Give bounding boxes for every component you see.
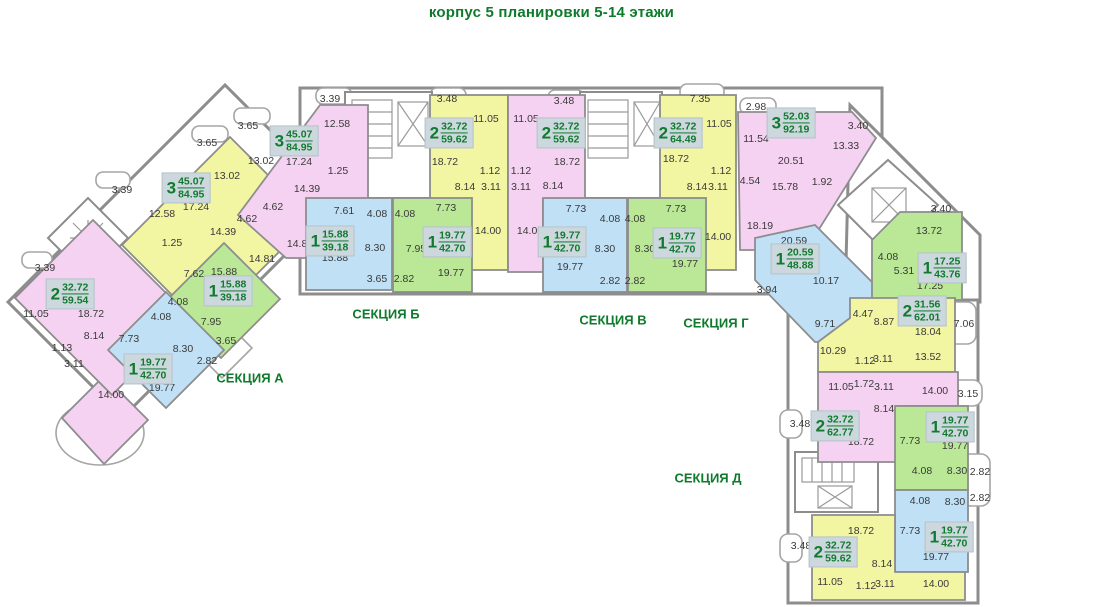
apartment-room-count: 3 — [275, 133, 284, 150]
room-area-label: 3.11 — [873, 354, 893, 365]
room-area-label: 3.65 — [197, 138, 217, 149]
section-label: СЕКЦИЯ А — [216, 371, 283, 386]
apartment-badge: 232.7259.62 — [537, 117, 586, 148]
apartment-room-count: 1 — [129, 361, 138, 378]
apartment-total-area: 39.18 — [322, 242, 348, 254]
room-area-label: 1.72 — [854, 379, 874, 390]
apartment-areas: 19.7742.70 — [669, 230, 695, 255]
room-area-label: 12.58 — [324, 119, 350, 130]
room-area-label: 11.05 — [23, 309, 49, 320]
room-area-label: 13.02 — [248, 156, 274, 167]
room-area-label: 3.15 — [958, 389, 978, 400]
section-label: СЕКЦИЯ Б — [352, 307, 419, 322]
room-area-label: 3.39 — [112, 185, 132, 196]
room-area-label: 11.05 — [513, 114, 539, 125]
room-area-label: 11.05 — [817, 577, 843, 588]
apartment-total-area: 48.88 — [787, 260, 813, 272]
apartment-areas: 15.8839.18 — [220, 278, 246, 303]
room-area-label: 19.77 — [923, 552, 949, 563]
apartment-living-area: 17.25 — [934, 255, 960, 268]
room-area-label: 3.11 — [874, 382, 894, 393]
room-area-label: 5.31 — [894, 266, 914, 277]
room-area-label: 1.12 — [711, 166, 731, 177]
room-area-label: 4.08 — [878, 252, 898, 263]
room-area-label: 7.73 — [119, 334, 139, 345]
room-area-label: 8.14 — [872, 559, 892, 570]
apartment-room-count: 2 — [430, 125, 439, 142]
room-area-label: 11.54 — [743, 134, 769, 145]
apartment-total-area: 42.70 — [439, 243, 465, 255]
room-area-label: 14.00 — [923, 579, 949, 590]
room-area-label: 19.77 — [672, 259, 698, 270]
apartment-areas: 32.7262.77 — [827, 413, 853, 438]
room-area-label: 3.65 — [216, 336, 236, 347]
room-area-label: 8.30 — [595, 244, 615, 255]
room-area-label: 10.17 — [813, 276, 839, 287]
apartment-areas: 17.2543.76 — [934, 255, 960, 280]
room-area-label: 18.04 — [915, 327, 941, 338]
apartment-living-area: 32.72 — [553, 120, 579, 133]
room-area-label: 4.08 — [367, 209, 387, 220]
apartment-areas: 32.7259.62 — [825, 539, 851, 564]
room-area-label: 3.40 — [848, 121, 868, 132]
apartment-total-area: 39.18 — [220, 292, 246, 304]
apartment-room-count: 3 — [167, 180, 176, 197]
apartment-areas: 32.7259.62 — [553, 120, 579, 145]
room-area-label: 3.39 — [320, 94, 340, 105]
room-area-label: 8.14 — [84, 331, 104, 342]
apartment-living-area: 19.77 — [439, 229, 465, 242]
apartment-areas: 19.7742.70 — [554, 229, 580, 254]
room-area-label: 14.00 — [98, 390, 124, 401]
room-area-label: 8.14 — [874, 404, 894, 415]
apartment-room-count: 1 — [658, 235, 667, 252]
room-area-label: 18.72 — [554, 157, 580, 168]
room-area-label: 7.73 — [666, 204, 686, 215]
room-area-label: 1.12 — [511, 166, 531, 177]
room-area-label: 7.35 — [690, 94, 710, 105]
room-area-label: 7.61 — [334, 206, 354, 217]
room-area-label: 4.62 — [237, 214, 257, 225]
room-area-label: 3.11 — [64, 359, 84, 370]
apartment-total-area: 43.76 — [934, 269, 960, 281]
apartment-areas: 19.7742.70 — [942, 414, 968, 439]
room-area-label: 14.81 — [249, 254, 275, 265]
room-area-label: 3.11 — [875, 579, 895, 590]
room-area-label: 18.72 — [663, 154, 689, 165]
room-area-label: 4.08 — [151, 312, 171, 323]
apartment-living-area: 19.77 — [942, 414, 968, 427]
room-area-label: 3.39 — [35, 263, 55, 274]
apartment-badge: 232.7262.77 — [811, 410, 860, 441]
room-area-label: 8.30 — [947, 466, 967, 477]
room-area-label: 7.06 — [954, 319, 974, 330]
room-area-label: 3.11 — [481, 182, 501, 193]
room-area-label: 7.73 — [900, 436, 920, 447]
room-area-label: 1.92 — [812, 177, 832, 188]
apartment-badge: 115.8839.18 — [306, 225, 355, 256]
apartment-badge: 232.7259.54 — [46, 278, 95, 309]
apartment-room-count: 2 — [903, 303, 912, 320]
room-area-label: 2.82 — [625, 276, 645, 287]
apartment-living-area: 32.72 — [827, 413, 853, 426]
room-area-label: 4.62 — [263, 202, 283, 213]
room-area-label: 8.87 — [874, 317, 894, 328]
room-area-label: 4.08 — [168, 297, 188, 308]
apartment-areas: 19.7742.70 — [140, 356, 166, 381]
section-label: СЕКЦИЯ Г — [683, 316, 748, 331]
room-area-label: 14.00 — [922, 386, 948, 397]
room-area-label: 13.52 — [915, 352, 941, 363]
apartment-areas: 52.0392.19 — [783, 110, 809, 135]
apartment-badge: 352.0392.19 — [767, 107, 816, 138]
room-area-label: 1.12 — [856, 581, 876, 592]
apartment-living-area: 52.03 — [783, 110, 809, 123]
apartment-badge: 115.8839.18 — [204, 275, 253, 306]
room-area-label: 2.82 — [970, 467, 990, 478]
room-area-label: 1.25 — [162, 238, 182, 249]
room-area-label: 4.08 — [395, 209, 415, 220]
room-area-label: 1.13 — [52, 343, 72, 354]
apartment-living-area: 32.72 — [62, 281, 88, 294]
room-area-label: 3.40 — [931, 204, 951, 215]
floor-plan: корпус 5 планировки 5-14 этажи 3.393.393… — [0, 0, 1103, 607]
apartment-badge: 120.5948.88 — [771, 243, 820, 274]
room-area-label: 17.24 — [286, 157, 312, 168]
apartment-total-area: 62.01 — [914, 312, 940, 324]
apartment-badge: 119.7742.70 — [538, 226, 587, 257]
room-area-label: 4.54 — [740, 176, 760, 187]
apartment-total-area: 59.54 — [62, 295, 88, 307]
apartment-living-area: 32.72 — [825, 539, 851, 552]
room-area-label: 4.08 — [910, 496, 930, 507]
apartment-total-area: 59.62 — [825, 553, 851, 565]
apartment-total-area: 92.19 — [783, 124, 809, 136]
room-area-label: 11.05 — [706, 119, 732, 130]
apartment-room-count: 1 — [930, 529, 939, 546]
room-area-label: 3.48 — [790, 419, 810, 430]
apartment-badge: 345.0784.95 — [270, 125, 319, 156]
section-label: СЕКЦИЯ В — [579, 313, 646, 328]
apartment-badge: 119.7742.70 — [653, 227, 702, 258]
room-area-label: 19.77 — [438, 268, 464, 279]
apartment-room-count: 3 — [772, 115, 781, 132]
apartment-room-count: 1 — [428, 234, 437, 251]
room-area-label: 8.14 — [687, 182, 707, 193]
apartment-total-area: 42.70 — [554, 243, 580, 255]
room-area-label: 7.62 — [184, 269, 204, 280]
room-area-label: 18.72 — [78, 309, 104, 320]
room-area-label: 8.30 — [945, 497, 965, 508]
apartment-total-area: 59.62 — [553, 134, 579, 146]
room-area-label: 14.39 — [294, 184, 320, 195]
room-area-label: 2.82 — [197, 356, 217, 367]
apartment-areas: 32.7264.49 — [670, 120, 696, 145]
room-area-label: 9.71 — [815, 319, 835, 330]
room-area-label: 8.14 — [543, 181, 563, 192]
room-area-label: 1.12 — [855, 356, 875, 367]
room-area-label: 12.58 — [149, 209, 175, 220]
room-area-label: 4.08 — [600, 214, 620, 225]
room-area-label: 3.94 — [757, 285, 777, 296]
room-area-label: 3.65 — [238, 121, 258, 132]
room-area-label: 18.72 — [848, 526, 874, 537]
apartment-total-area: 42.70 — [941, 538, 967, 550]
apartment-areas: 32.7259.54 — [62, 281, 88, 306]
room-area-label: 15.78 — [772, 182, 798, 193]
room-area-label: 14.00 — [705, 232, 731, 243]
apartment-badge: 119.7742.70 — [423, 226, 472, 257]
apartment-badge: 119.7742.70 — [925, 521, 974, 552]
room-area-label: 14.39 — [210, 227, 236, 238]
apartment-badge: 117.2543.76 — [918, 252, 967, 283]
apartment-room-count: 1 — [931, 419, 940, 436]
room-area-label: 4.47 — [853, 309, 873, 320]
apartment-living-area: 20.59 — [787, 246, 813, 259]
apartment-living-area: 45.07 — [286, 128, 312, 141]
apartment-living-area: 19.77 — [140, 356, 166, 369]
apartment-living-area: 32.72 — [670, 120, 696, 133]
room-area-label: 1.12 — [480, 166, 500, 177]
apartment-total-area: 42.70 — [669, 244, 695, 256]
room-area-label: 11.05 — [473, 114, 499, 125]
apartment-living-area: 19.77 — [554, 229, 580, 242]
room-area-label: 4.08 — [625, 214, 645, 225]
room-area-label: 20.51 — [778, 156, 804, 167]
apartment-badge: 232.7259.62 — [425, 117, 474, 148]
room-area-label: 13.02 — [214, 171, 240, 182]
apartment-living-area: 19.77 — [941, 524, 967, 537]
apartment-total-area: 42.70 — [942, 428, 968, 440]
apartment-total-area: 84.95 — [286, 142, 312, 154]
room-area-label: 18.19 — [747, 221, 773, 232]
apartment-badge: 119.7742.70 — [926, 411, 975, 442]
apartment-areas: 20.5948.88 — [787, 246, 813, 271]
apartment-total-area: 42.70 — [140, 370, 166, 382]
apartment-badge: 232.7264.49 — [654, 117, 703, 148]
apartment-room-count: 1 — [209, 283, 218, 300]
room-area-label: 10.29 — [820, 346, 846, 357]
apartment-areas: 31.5662.01 — [914, 298, 940, 323]
room-area-label: 13.33 — [833, 141, 859, 152]
apartment-living-area: 31.56 — [914, 298, 940, 311]
apartment-total-area: 62.77 — [827, 427, 853, 439]
apartment-living-area: 15.88 — [322, 228, 348, 241]
room-area-label: 2.82 — [970, 493, 990, 504]
room-area-label: 1.25 — [328, 166, 348, 177]
room-area-label: 4.08 — [912, 466, 932, 477]
room-area-label: 3.11 — [511, 182, 531, 193]
apartment-room-count: 2 — [542, 125, 551, 142]
apartment-badge: 231.5662.01 — [898, 295, 947, 326]
room-area-label: 18.72 — [432, 157, 458, 168]
room-area-label: 7.73 — [900, 526, 920, 537]
room-area-label: 13.72 — [916, 226, 942, 237]
apartment-room-count: 1 — [311, 233, 320, 250]
room-area-label: 7.95 — [201, 317, 221, 328]
apartment-areas: 15.8839.18 — [322, 228, 348, 253]
room-area-label: 8.30 — [365, 243, 385, 254]
apartment-room-count: 1 — [923, 260, 932, 277]
room-area-label: 19.77 — [557, 262, 583, 273]
apartment-room-count: 1 — [543, 234, 552, 251]
apartment-living-area: 19.77 — [669, 230, 695, 243]
room-area-label: 2.82 — [600, 276, 620, 287]
apartment-badge: 119.7742.70 — [124, 353, 173, 384]
apartment-room-count: 2 — [816, 418, 825, 435]
apartment-total-area: 64.49 — [670, 134, 696, 146]
apartment-areas: 19.7742.70 — [941, 524, 967, 549]
room-area-label: 8.30 — [173, 344, 193, 355]
apartment-room-count: 2 — [659, 125, 668, 142]
apartment-total-area: 84.95 — [178, 189, 204, 201]
apartment-areas: 19.7742.70 — [439, 229, 465, 254]
apartment-room-count: 2 — [814, 544, 823, 561]
room-area-label: 3.11 — [708, 182, 728, 193]
apartment-living-area: 15.88 — [220, 278, 246, 291]
room-area-label: 2.98 — [746, 102, 766, 113]
floor-plan-labels: 3.393.393.653.6512.5817.2413.0214.391.25… — [0, 0, 1103, 607]
room-area-label: 3.48 — [437, 94, 457, 105]
room-area-label: 3.48 — [554, 96, 574, 107]
apartment-badge: 345.0784.95 — [162, 172, 211, 203]
section-label: СЕКЦИЯ Д — [674, 471, 741, 486]
apartment-room-count: 1 — [776, 251, 785, 268]
apartment-areas: 45.0784.95 — [178, 175, 204, 200]
room-area-label: 7.73 — [436, 203, 456, 214]
apartment-living-area: 45.07 — [178, 175, 204, 188]
apartment-areas: 45.0784.95 — [286, 128, 312, 153]
room-area-label: 14.00 — [475, 226, 501, 237]
room-area-label: 3.65 — [367, 274, 387, 285]
apartment-badge: 232.7259.62 — [809, 536, 858, 567]
apartment-areas: 32.7259.62 — [441, 120, 467, 145]
room-area-label: 11.05 — [828, 382, 854, 393]
apartment-room-count: 2 — [51, 286, 60, 303]
room-area-label: 7.73 — [566, 204, 586, 215]
room-area-label: 8.14 — [455, 182, 475, 193]
apartment-living-area: 32.72 — [441, 120, 467, 133]
room-area-label: 2.82 — [394, 274, 414, 285]
apartment-total-area: 59.62 — [441, 134, 467, 146]
